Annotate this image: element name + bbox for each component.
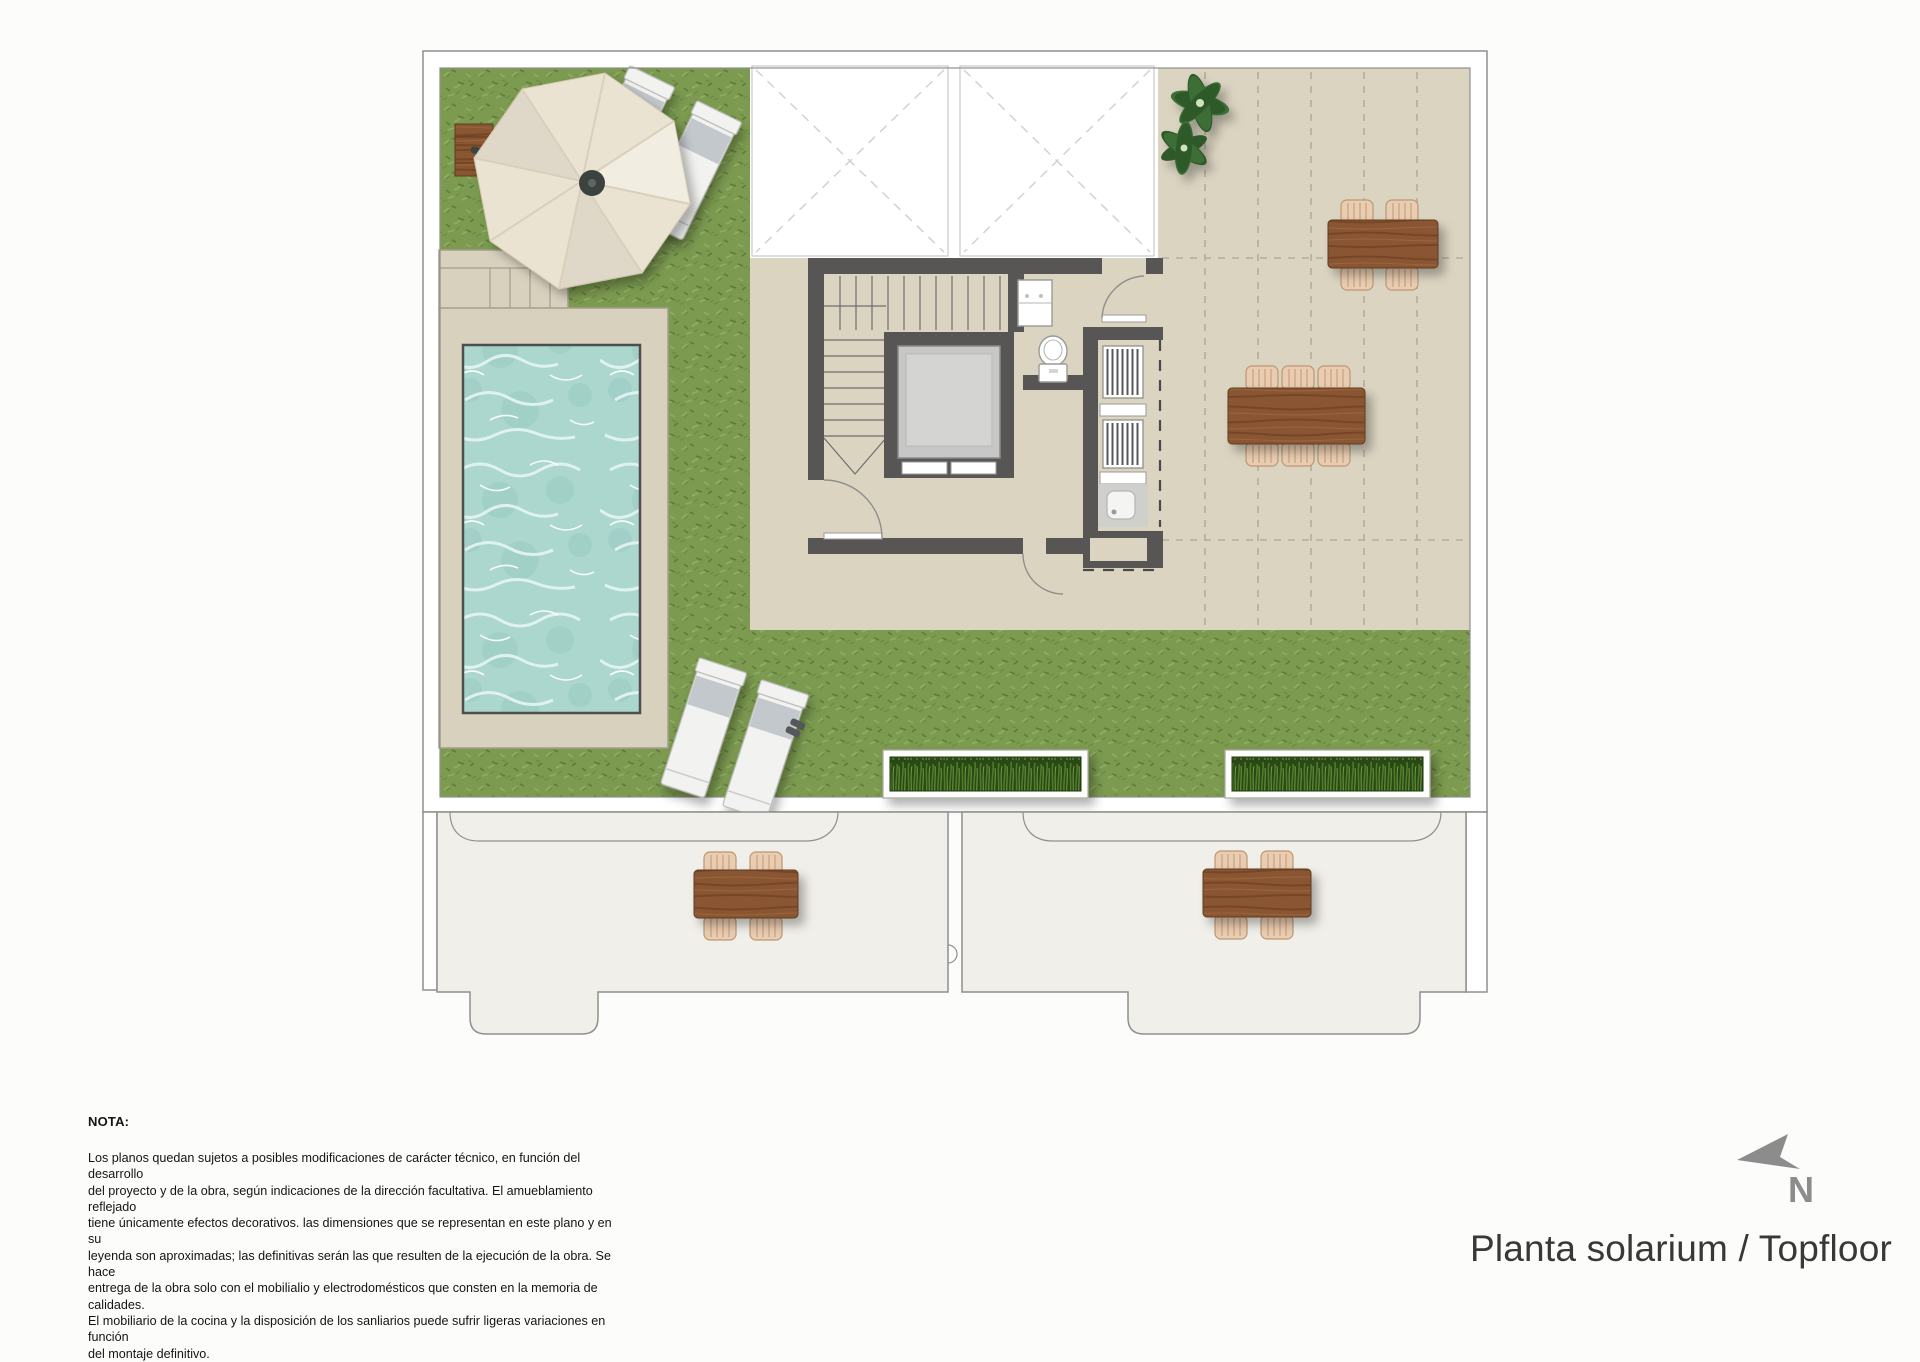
- nota-line: tiene únicamente efectos decorativos. la…: [88, 1215, 628, 1248]
- skylight-right: [960, 66, 1154, 256]
- tiled-terrace-right: [1158, 68, 1470, 630]
- north-label: N: [1788, 1169, 1814, 1210]
- skylight-left: [752, 66, 948, 256]
- nota-line: del montaje definitivo.: [88, 1346, 628, 1362]
- nota-block: NOTA: Los planos quedan sujetos a posibl…: [88, 1114, 628, 1362]
- planter-box: [1225, 750, 1430, 798]
- nota-line: entrega de la obra solo con el mobiliali…: [88, 1280, 628, 1313]
- shower-cabinet: [1018, 280, 1052, 326]
- nota-line: del proyecto y de la obra, según indicac…: [88, 1183, 628, 1216]
- north-arrow: N: [1690, 1122, 1850, 1232]
- floor-plan-page: N NOTA: Los planos quedan sujetos a posi…: [0, 0, 1920, 1280]
- sink: [1107, 491, 1135, 519]
- dining-set-6: [1228, 366, 1365, 466]
- shelf: [1100, 404, 1146, 416]
- nota-line: leyenda son aproximadas; las definitivas…: [88, 1248, 628, 1281]
- toilet: [1039, 336, 1067, 382]
- lower-terrace-left: [437, 812, 957, 1034]
- elevator: [884, 332, 1014, 478]
- nota-line: Los planos quedan sujetos a posibles mod…: [88, 1150, 628, 1183]
- lower-terrace-right: [962, 812, 1466, 1034]
- louver-unit: [1103, 420, 1143, 468]
- nota-heading: NOTA:: [88, 1114, 628, 1129]
- page-title: Planta solarium / Topfloor: [1470, 1228, 1892, 1270]
- nota-line: El mobiliario de la cocina y la disposic…: [88, 1313, 628, 1346]
- louver-unit: [1103, 346, 1143, 398]
- shelf: [1100, 472, 1146, 484]
- planter-box: [883, 750, 1088, 798]
- floor-plan-drawing: [0, 0, 1920, 1280]
- swimming-pool: [463, 345, 640, 713]
- north-arrow-icon: [1737, 1134, 1800, 1169]
